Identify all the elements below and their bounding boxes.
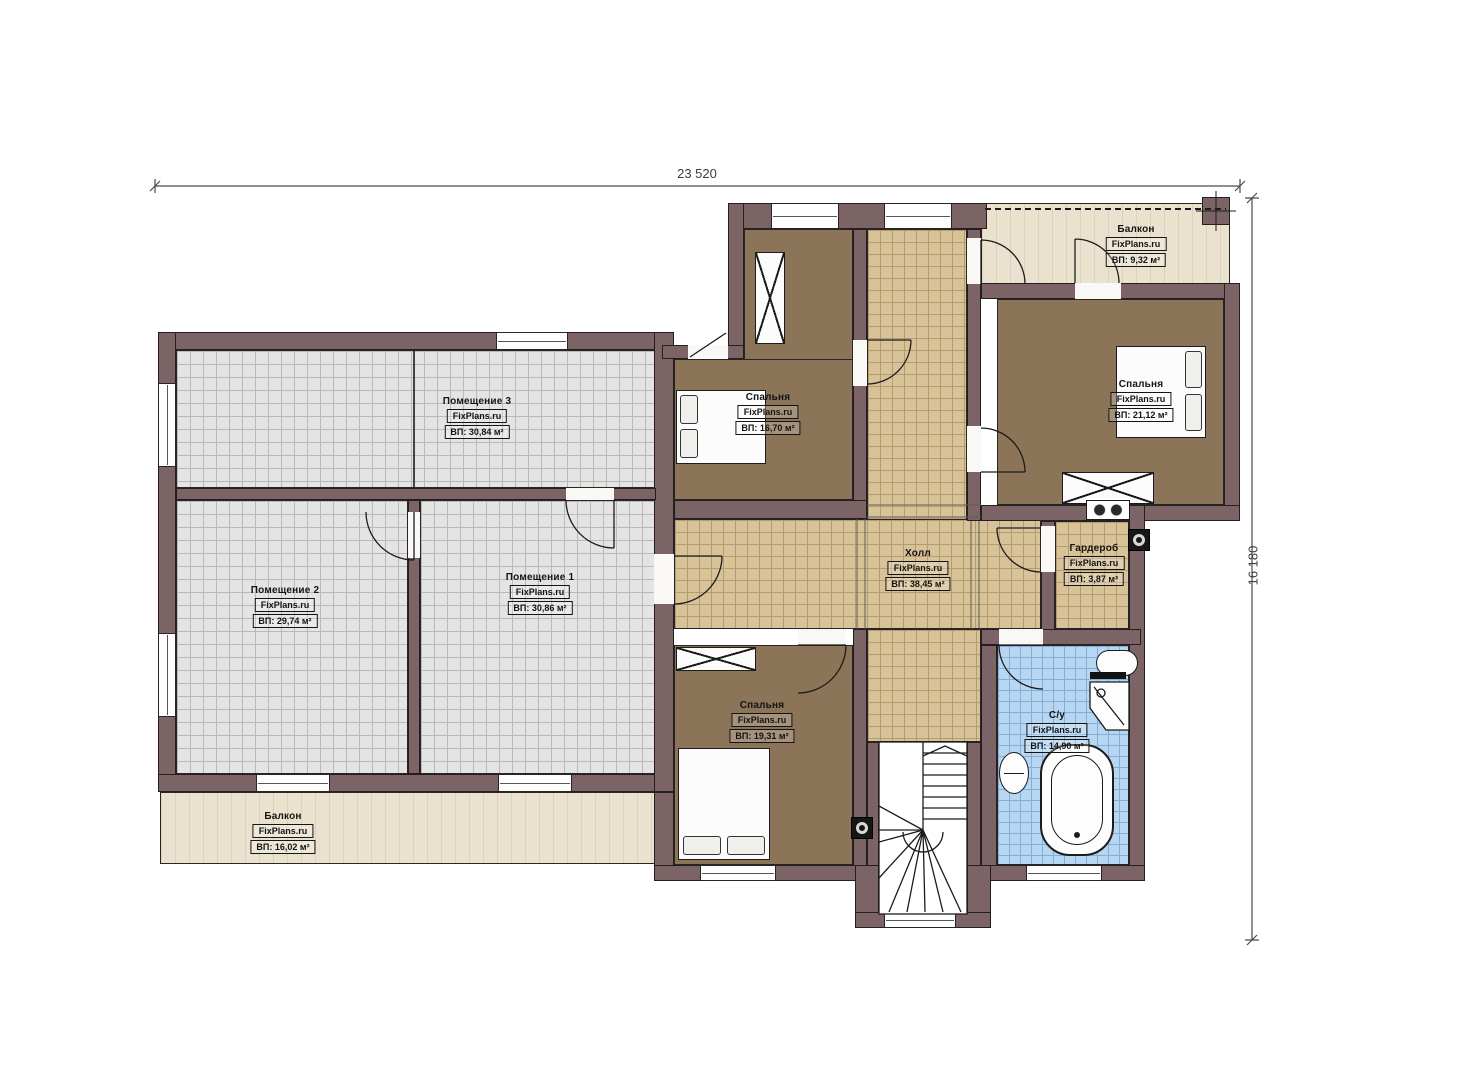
room-name: Гардероб	[1064, 543, 1125, 554]
room-label-balcony-bottom: Балкон FixPlans.ru ВП: 16,02 м²	[250, 811, 315, 854]
room-area: ВП: 38,45 м²	[885, 577, 950, 591]
room-name: Спальня	[1108, 379, 1173, 390]
room-area: ВП: 14,90 м²	[1024, 739, 1089, 753]
brand-badge: FixPlans.ru	[253, 824, 314, 838]
room-name: Балкон	[250, 811, 315, 822]
room-name: Спальня	[729, 700, 794, 711]
room-area: ВП: 30,84 м²	[444, 425, 509, 439]
dimension-width: 23 520	[657, 166, 737, 181]
room-label-room1: Помещение 1 FixPlans.ru ВП: 30,86 м²	[506, 572, 574, 615]
brand-badge: FixPlans.ru	[738, 405, 799, 419]
floor-plan: 23 520 16 180 Помещение 3 FixPlans.ru ВП…	[0, 0, 1473, 1080]
room-name: Балкон	[1106, 224, 1167, 235]
brand-badge: FixPlans.ru	[255, 598, 316, 612]
brand-badge: FixPlans.ru	[510, 585, 571, 599]
brand-badge: FixPlans.ru	[888, 561, 949, 575]
dimension-height: 16 180	[1246, 535, 1261, 597]
room-name: Спальня	[735, 392, 800, 403]
room-label-bathroom: С/у FixPlans.ru ВП: 14,90 м²	[1024, 710, 1089, 753]
room-name: Помещение 3	[443, 396, 511, 407]
room-label-bedroom-bottom: Спальня FixPlans.ru ВП: 19,31 м²	[729, 700, 794, 743]
brand-badge: FixPlans.ru	[1064, 556, 1125, 570]
room-area: ВП: 29,74 м²	[252, 614, 317, 628]
room-area: ВП: 3,87 м²	[1064, 572, 1124, 586]
room-area: ВП: 9,32 м²	[1106, 253, 1166, 267]
brand-badge: FixPlans.ru	[1106, 237, 1167, 251]
room-label-room3: Помещение 3 FixPlans.ru ВП: 30,84 м²	[443, 396, 511, 439]
room-name: Помещение 1	[506, 572, 574, 583]
brand-badge: FixPlans.ru	[1111, 392, 1172, 406]
room-area: ВП: 21,12 м²	[1108, 408, 1173, 422]
room-area: ВП: 16,70 м²	[735, 421, 800, 435]
room-name: Помещение 2	[251, 585, 319, 596]
room-label-bedroom-top: Спальня FixPlans.ru ВП: 16,70 м²	[735, 392, 800, 435]
room-area: ВП: 16,02 м²	[250, 840, 315, 854]
room-name: Холл	[885, 548, 950, 559]
room-label-room2: Помещение 2 FixPlans.ru ВП: 29,74 м²	[251, 585, 319, 628]
room-label-bedroom-right: Спальня FixPlans.ru ВП: 21,12 м²	[1108, 379, 1173, 422]
room-area: ВП: 30,86 м²	[507, 601, 572, 615]
room-name: С/у	[1024, 710, 1089, 721]
room-area: ВП: 19,31 м²	[729, 729, 794, 743]
room-label-wardrobe: Гардероб FixPlans.ru ВП: 3,87 м²	[1064, 543, 1125, 586]
room-label-balcony-top: Балкон FixPlans.ru ВП: 9,32 м²	[1106, 224, 1167, 267]
room-label-hall: Холл FixPlans.ru ВП: 38,45 м²	[885, 548, 950, 591]
brand-badge: FixPlans.ru	[447, 409, 508, 423]
brand-badge: FixPlans.ru	[1027, 723, 1088, 737]
brand-badge: FixPlans.ru	[732, 713, 793, 727]
